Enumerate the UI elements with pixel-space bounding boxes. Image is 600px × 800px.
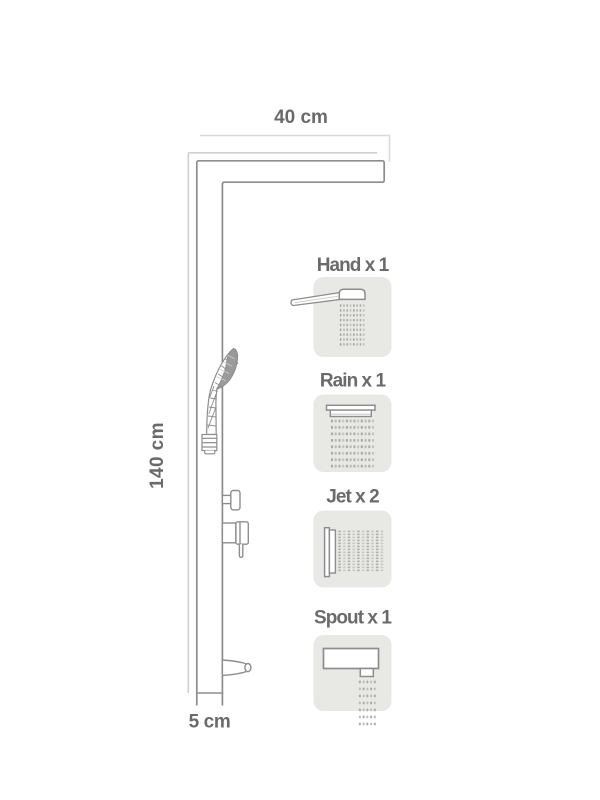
svg-text:Jet x 2: Jet x 2 bbox=[326, 487, 379, 508]
svg-text:Rain x 1: Rain x 1 bbox=[320, 371, 387, 392]
svg-text:5 cm: 5 cm bbox=[189, 712, 231, 733]
svg-text:Spout x 1: Spout x 1 bbox=[314, 608, 392, 629]
svg-text:40 cm: 40 cm bbox=[274, 107, 328, 128]
svg-text:Hand x 1: Hand x 1 bbox=[317, 255, 390, 276]
svg-text:140 cm: 140 cm bbox=[147, 422, 168, 489]
